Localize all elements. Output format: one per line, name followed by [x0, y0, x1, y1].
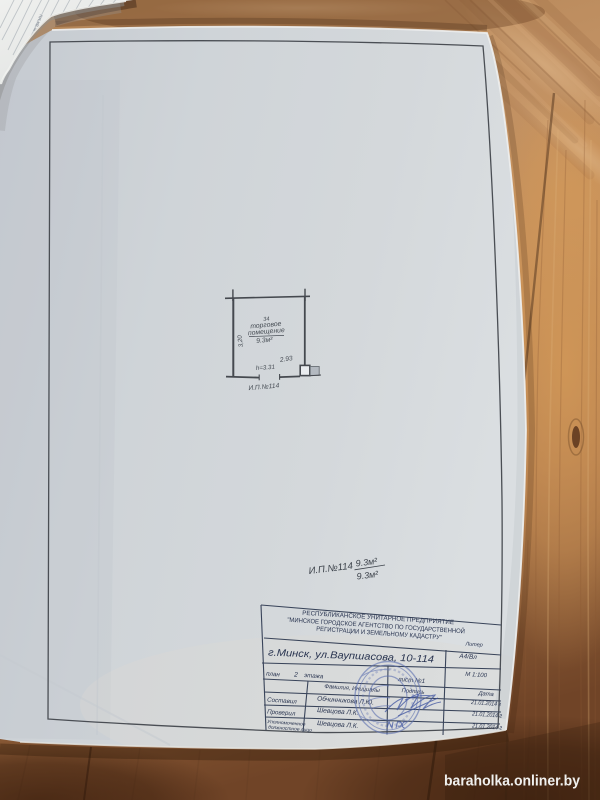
svg-text:2: 2 — [293, 671, 298, 678]
svg-text:Дата: Дата — [477, 691, 494, 698]
svg-text:h=3.31: h=3.31 — [256, 364, 276, 372]
svg-text:этажа: этажа — [304, 672, 324, 680]
svg-text:3,20: 3,20 — [237, 334, 245, 347]
svg-text:А4/Вл: А4/Вл — [458, 653, 477, 661]
svg-text:план: план — [266, 671, 281, 679]
svg-text:baraholka.onliner.by: baraholka.onliner.by — [444, 773, 581, 790]
svg-text:9.3м²: 9.3м² — [256, 337, 274, 345]
